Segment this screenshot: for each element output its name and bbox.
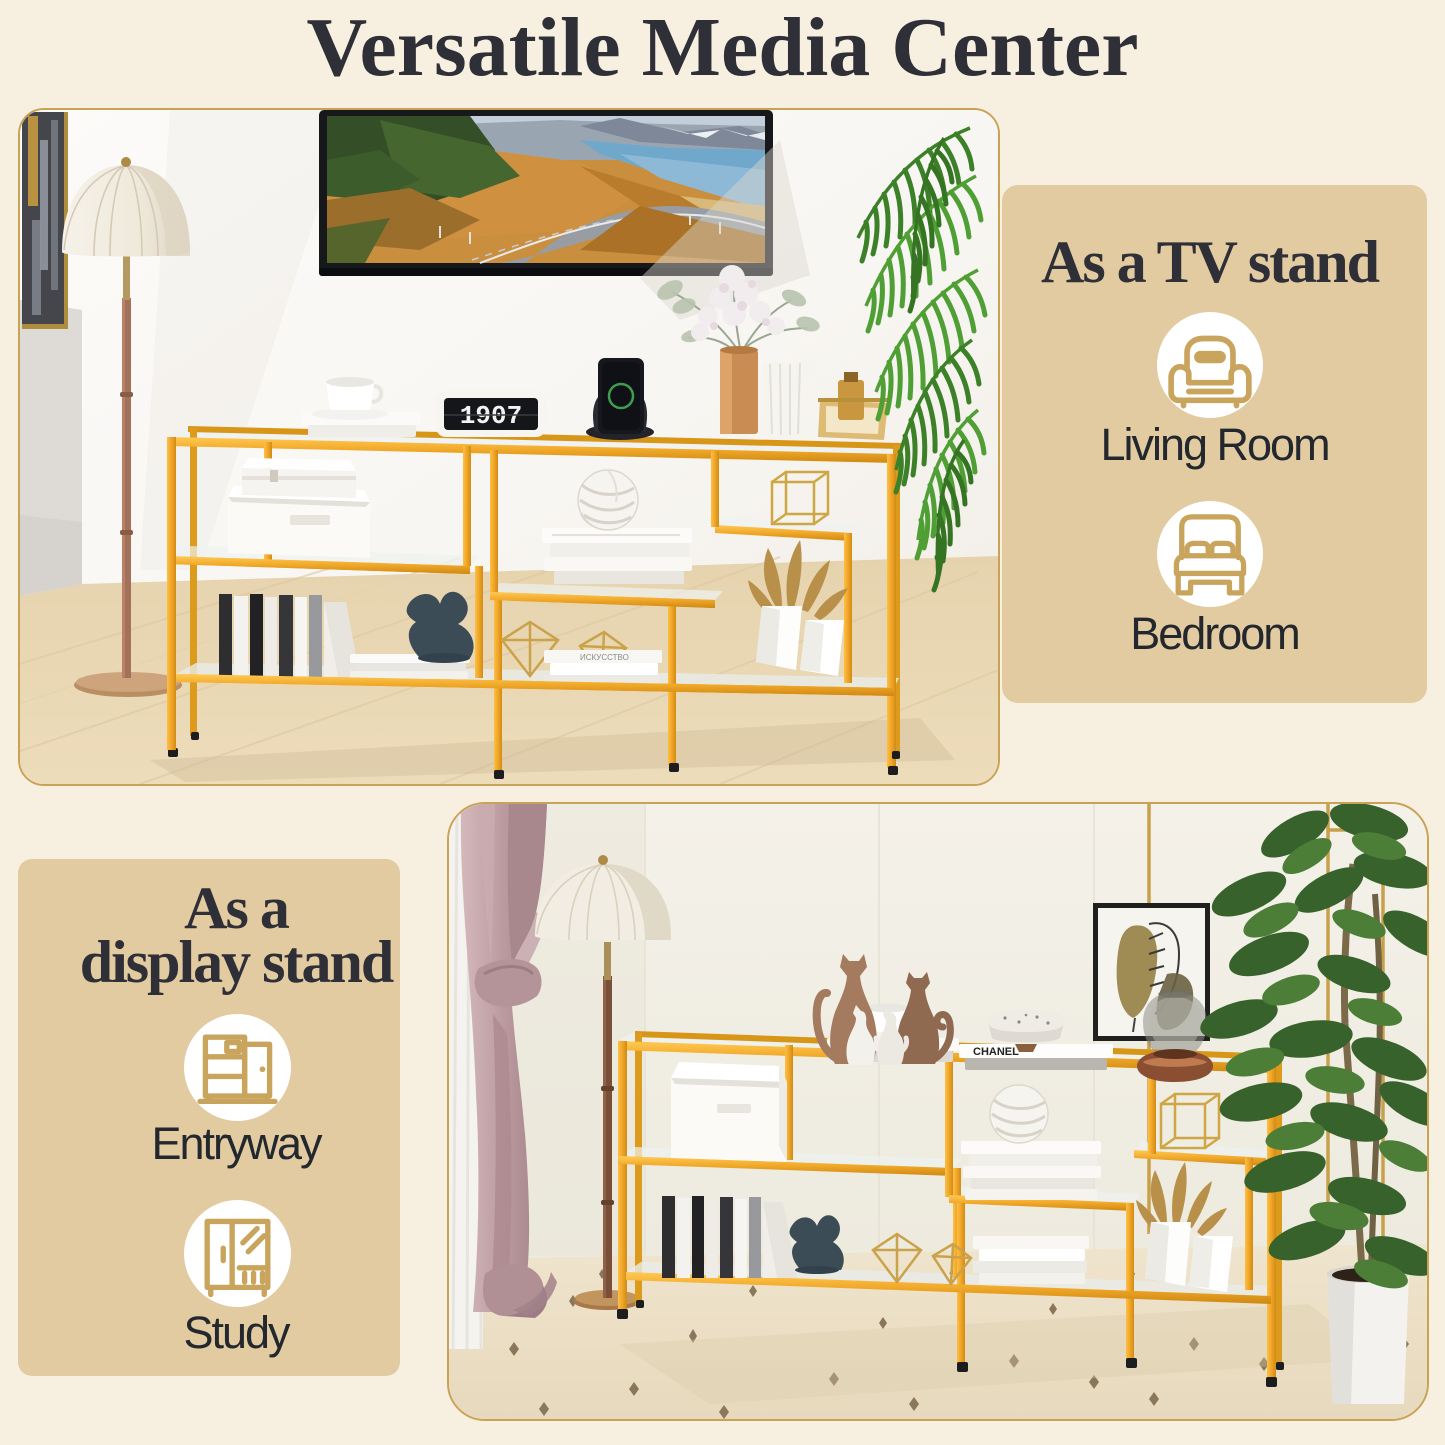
svg-text:ИСКУССТВО: ИСКУССТВО	[580, 653, 629, 662]
svg-text:CHANEL: CHANEL	[973, 1046, 1019, 1058]
svg-text:1907: 1907	[460, 401, 522, 431]
